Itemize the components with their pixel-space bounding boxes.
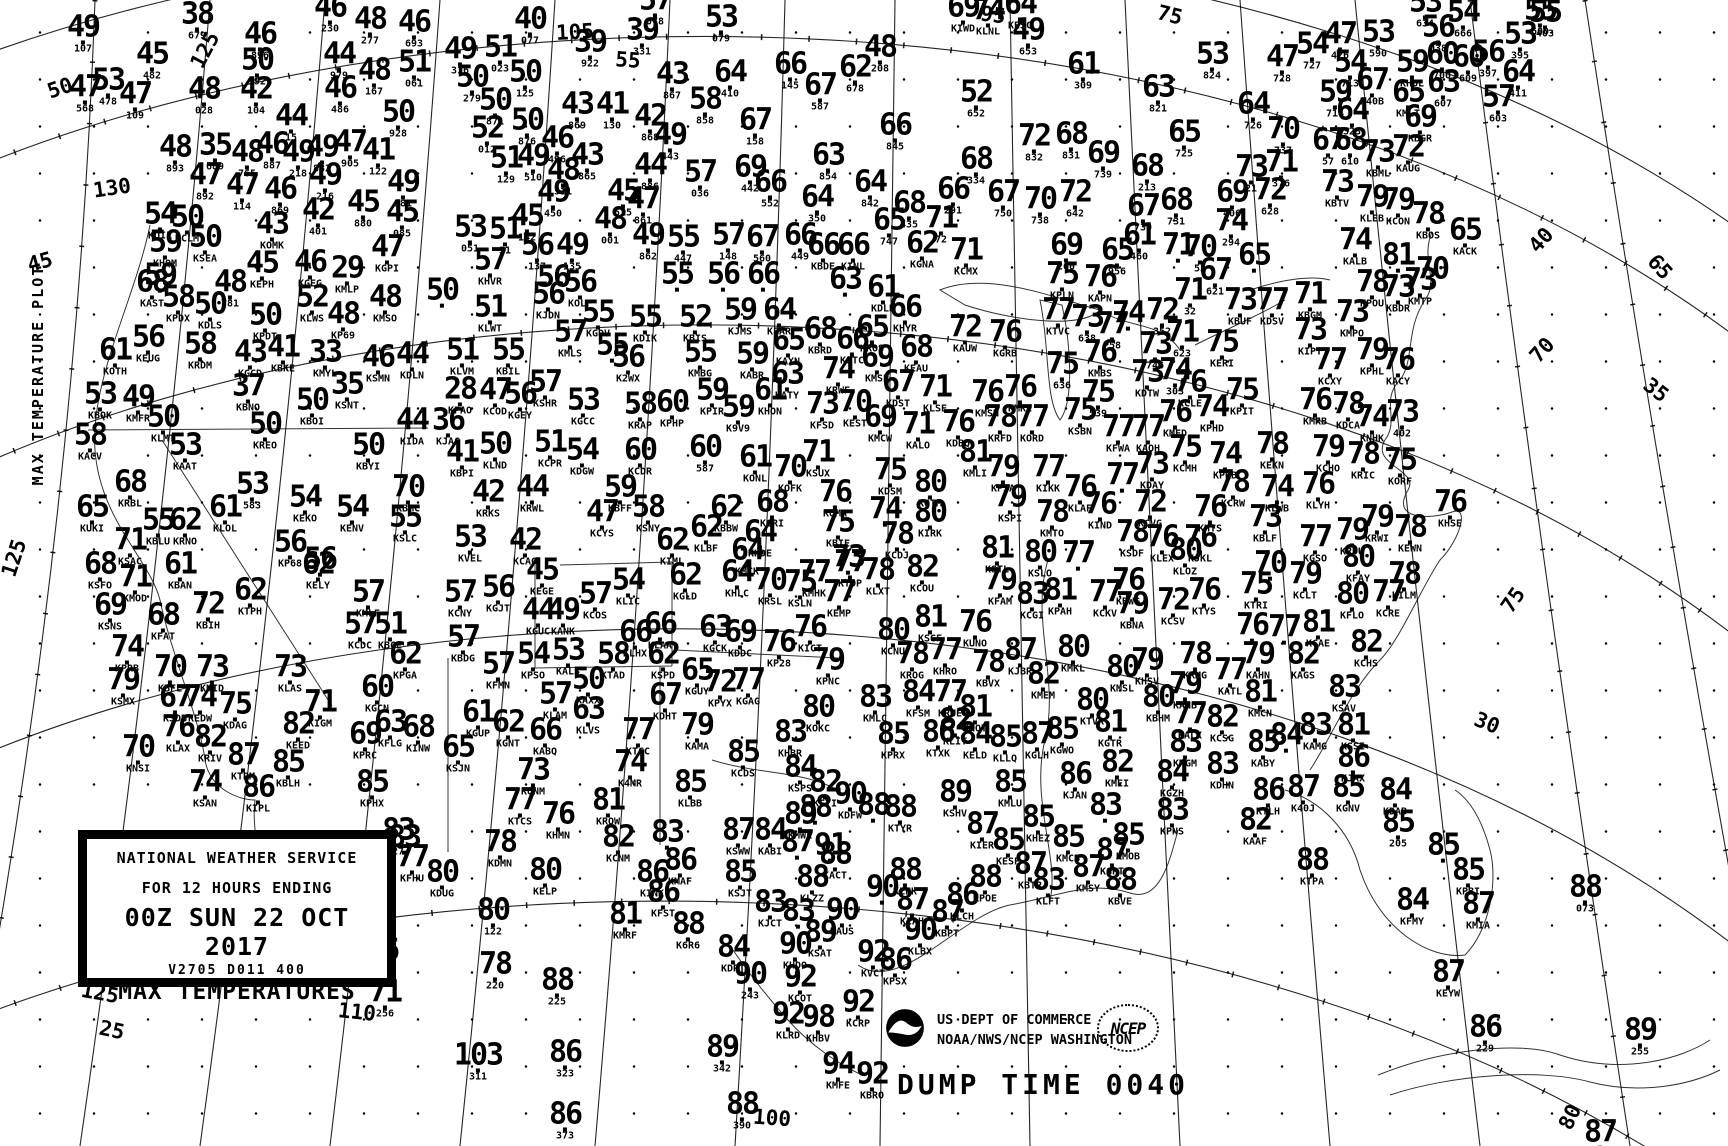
station-plot: 50 [426,278,458,308]
station-plot: 61KBAN [164,551,196,591]
station-plot: 86229 [1469,1014,1501,1053]
station-plot: 70KNSI [122,734,154,774]
station-plot: 42KRKS [472,479,504,518]
station-plot: 80KOKC [802,694,834,734]
station-plot: 76KHMN [542,801,574,841]
station-plot: 66 [747,262,779,292]
station-plot: 88K6R6 [672,911,704,951]
station-plot: 53079 [705,4,737,44]
station-plot: 55KBIL [492,337,524,377]
station-plot: 82KCHS [1350,629,1382,669]
station-plot: 57KCDC [344,611,376,651]
station-plot: 85KLBB [674,769,706,809]
station-plot: 90243 [734,961,766,1001]
station-plot: 85KPRX [877,721,909,761]
station-plot: 65KUKI [76,494,108,533]
station-plot: 51KCPR [534,429,566,469]
station-plot: 53634 [1409,0,1441,29]
station-plot: 85KCDS [727,739,759,779]
station-plot: 56KGJT [482,574,514,614]
station-plot: 77KGAG [732,667,764,707]
station-plot: 77KIKK [1032,454,1064,494]
station-plot: 49107 [67,14,99,54]
station-plot: 57KFMN [482,651,514,691]
station-plot: 50KLND [479,431,511,471]
station-plot: 57KCOS [579,581,611,621]
station-plot: 48893 [159,134,191,174]
station-plot: 76KP28 [763,629,795,669]
station-plot: 74KSAN [189,769,221,809]
station-plot: 62KPGA [389,641,421,681]
station-plot: 66KABQ [529,717,561,757]
station-plot: 61KLOL [209,494,241,533]
station-plot: 82KCSG [1206,704,1238,744]
station-plot: 48KMSO [369,284,401,324]
station-plot: 80KELP [529,857,561,897]
station-plot: 92KCRP [842,989,874,1028]
station-plot: 72KAUW [949,314,981,354]
station-plot: 86KIPL [242,774,274,814]
station-plot: 38679 [181,1,213,41]
legend-agency-title: NATIONAL WEATHER SERVICE [87,849,387,867]
station-plot: 72KCSV [1157,587,1189,627]
station-plot: 82KRIV [194,724,226,764]
station-plot: 87KEYW [1432,959,1464,999]
station-plot: 78KSDF [1116,519,1148,559]
station-plot: 63 [829,267,861,297]
station-plot: 65 [1238,243,1270,273]
station-plot: 75636 [1046,351,1078,391]
station-plot: 50KREO [249,411,281,451]
station-plot: 43869 [561,91,593,130]
station-plot: 79KCLT [1289,561,1321,601]
station-plot: 78KEWN [1394,514,1426,554]
station-plot: 77 [1062,541,1094,571]
station-plot: 49KANK [547,597,579,637]
station-plot: 62KGLD [669,562,701,602]
station-plot: 66552 [754,169,786,209]
station-plot: 83KDHN [1206,751,1238,791]
station-plot: 85KABY [1247,729,1279,769]
station-plot: 79KAMA [681,712,713,752]
station-plot: 71KSUX [802,439,834,479]
station-plot: 88390 [726,1091,758,1131]
station-plot: 84KGZH [1156,759,1188,799]
station-plot: 80122 [477,897,509,937]
station-plot: 86323 [549,1039,581,1079]
station-plot: 78KMTO [1036,499,1068,538]
station-plot: 67587 [804,72,836,112]
station-plot: 73402 [1386,399,1418,439]
station-plot: 42104 [240,76,272,116]
station-plot: 85KPHX [356,769,388,809]
station-plot: 65KACK [1449,217,1481,257]
station-plot: 66145 [774,51,806,91]
station-plot: 81KPAH [1044,577,1076,617]
station-plot: 45KEPH [246,250,278,290]
station-plot: 78KBOS [1412,201,1444,241]
station-plot: 79KFAM [984,567,1016,607]
station-plot: 70738 [1024,186,1056,226]
station-plot: 46693 [398,9,430,49]
station-plot: 48781 [214,269,246,309]
station-plot: 83KPNS [1156,797,1188,837]
station-plot: 48028 [188,76,220,116]
station-plot: 87 [781,830,813,860]
station-plot: 83KAMG [1299,712,1331,752]
station-plot: 7132 [1174,277,1206,317]
station-plot: 51061 [398,49,430,89]
station-plot: 92KLRD [772,1001,804,1040]
station-plot: 48001 [594,206,626,246]
station-plot: 75KSBN [1064,397,1096,437]
station-plot: 69KDDC [724,619,756,659]
station-plot: 50KBOI [296,387,328,427]
station-plot: 48167 [358,57,390,97]
station-plot: 35KSNT [331,371,363,411]
station-plot: 58KACV [74,422,106,462]
station-plot: 47728 [1266,44,1298,84]
station-plot: 90 [866,875,898,905]
station-plot: 45482 [136,41,168,81]
station-plot: 73KLAS [274,654,306,694]
station-plot: 62KELY [302,551,334,591]
station-plot: 78KLXT [862,557,894,597]
station-plot: 79KSMX [107,667,139,707]
station-plot: 58KPDX [162,284,194,324]
station-plot: 73KMTP [1404,267,1436,307]
station-plot: 66KHYR [889,294,921,334]
station-plot: 88073 [1569,874,1601,914]
station-plot: 82KMEI [1101,749,1133,789]
station-plot: 62KGNT [492,709,524,749]
station-plot: 63KLVS [572,696,604,736]
station-plot: 77KCRE [1372,579,1404,619]
station-plot: 76KUNO [959,609,991,649]
station-plot: 87KMIA [1462,891,1494,931]
station-plot: 85KLLQ [989,724,1021,764]
station-plot: 47KCYS [586,499,618,538]
station-plot: 45KEGE [526,557,558,597]
station-plot: 76KTYS [1188,577,1220,617]
station-plot: 50KBYI [352,432,384,472]
station-plot: 68KFAT [147,602,179,642]
station-plot: 69KMCW [864,404,896,444]
station-plot: 44KRWL [516,474,548,513]
station-plot: 89342 [706,1034,738,1074]
station-plot: 85KSJT [724,859,756,899]
station-plot: 86KTXK [922,719,954,759]
station-plot: 78KEKN [1256,431,1288,471]
station-plot: 80KLOZ [1169,537,1201,577]
station-plot: 62KSPD [647,641,679,681]
station-plot: 53KBOK [84,381,116,421]
station-plot: 73KBML [1362,139,1394,179]
station-plot: 85KBLH [272,749,304,789]
station-plot: 64842 [854,169,886,209]
station-plot: 57078 [639,0,671,27]
station-plot: 84KELD [959,721,991,761]
station-plot: 54KENV [336,494,368,533]
station-plot: 79KCON [1382,187,1414,227]
station-plot: 57KBDG [447,624,479,664]
station-plot: 57KSHR [529,369,561,409]
station-plot: 47KGPI [371,234,403,274]
station-plot: 87 [1584,1120,1616,1146]
station-plot: 76KMRB [1299,387,1331,427]
station-plot: 46KSMN [362,344,394,384]
station-plot: 65KSJN [442,734,474,774]
station-plot: 61KONL [739,444,771,484]
station-plot: 54KEKO [289,484,321,523]
station-plot: 82KAAF [1239,807,1271,847]
legend-product-title: MAX TEMPERATURES [87,979,387,1005]
station-plot: 83KLFT [1032,867,1064,907]
station-plot: 75KPIT [1226,377,1258,417]
dump-time-label: DUMP TIME 0040 [897,1068,1189,1101]
station-plot: 60KPHP [656,389,688,429]
station-plot: 76KHSE [1434,489,1466,528]
station-plot: 82KMEM [1027,661,1059,701]
station-plot: 79KBNA [1116,591,1148,631]
station-plot: 75KTRI [1240,571,1272,611]
station-plot: 74KPHD [1196,394,1228,434]
station-plot: 55600 [1524,0,1556,37]
station-plot: 70KRSL [754,567,786,607]
station-plot: 53KGCC [567,387,599,427]
station-plot: 44KDLN [396,341,428,381]
station-plot: 47109 [119,81,151,121]
station-plot: 77KHRO [929,637,961,677]
station-plot: 71KALO [902,411,934,451]
station-plot: 39922 [574,29,606,69]
station-plot: 59K9V9 [722,394,754,434]
station-plot: 87KBPT [931,899,963,939]
station-plot: 63854 [812,142,844,182]
station-plot: 62KTPH [234,577,266,617]
station-plot: 61KHON [754,377,786,417]
station-plot: 92KBRO [856,1061,888,1101]
station-plot: 87KSWW [722,817,754,857]
station-plot: 47892 [189,162,221,202]
legend-period-label: FOR 12 HOURS ENDING [87,879,387,897]
station-plot: 67750 [987,179,1019,219]
station-plot: 41130 [596,91,628,130]
station-plot: 53KAAT [169,432,201,472]
station-plot: 69739 [1087,140,1119,180]
station-plot: 40077 [514,6,546,46]
station-plot: 49862 [632,222,664,262]
station-plot: 74KALB [1339,227,1371,267]
station-plot: 61KOTH [99,337,131,377]
station-plot: 81KMCN [1244,679,1276,719]
station-plot: 47114 [226,172,258,212]
station-plot: 81KMRF [609,901,641,941]
station-plot: 48208 [864,34,896,74]
station-plot: 52KLWS [296,284,328,324]
station-plot: 76KLYH [1302,471,1334,511]
station-plot: 62KGNA [906,230,938,270]
station-plot: 61309 [1067,51,1099,91]
station-plot: 62KLBF [690,514,722,554]
station-plot: 77KCXY [1314,347,1346,387]
station-plot: 76KLAX [162,714,194,754]
station-plot: 77KFWA [1102,414,1134,454]
station-plot: 55KDIK [629,304,661,344]
station-plot: 80KFLO [1336,581,1368,621]
station-plot: 43865 [571,142,603,182]
station-plot: 89255 [1624,1017,1656,1056]
station-plot: 68831 [1055,121,1087,160]
station-plot: 68KBRD [804,316,836,356]
station-plot: 79KPNC [812,647,844,687]
station-plot: 62KRNO [169,507,201,546]
station-plot: 41KBPI [446,439,478,479]
station-plot: 77KFHU [396,844,428,884]
station-plot: 48277 [354,6,386,46]
station-plot: 72832 [1018,123,1050,162]
station-plot: 76KACY [1382,347,1414,387]
station-plot: 69KSNS [94,592,126,632]
station-plot: 29KMLP [331,255,363,295]
station-plot: 77KTCS [504,787,536,827]
station-plot: 58KRDM [184,331,216,371]
station-plot: 64410 [714,59,746,99]
station-plot: 73KBTV [1321,169,1353,209]
station-plot: 78220 [479,951,511,991]
station-plot: 56397 [1472,39,1504,79]
station-plot: 78KBVX [972,649,1004,689]
weather-map-canvas: 4910745482475685347847109386794689650192… [0,0,1728,1146]
station-plot: 46230 [314,0,346,34]
station-plot: 42401 [302,197,334,237]
station-plot: 84KFMY [1396,887,1428,927]
station-plot: 85KHEZ [1022,804,1054,844]
station-plot: 76KMBS [1084,339,1116,379]
station-plot: 77KDSV [1256,287,1288,327]
station-plot: 82KCOU [906,554,938,594]
station-plot: 54KPSO [517,641,549,681]
station-plot: 67158 [739,107,771,146]
station-plot: 68731 [1160,187,1192,227]
legend-version-codes: V2705 D011 400 [87,963,387,978]
station-plot: 45880 [347,189,379,229]
station-plot: 98KHBV [802,1004,834,1043]
station-plot: 72628 [1254,177,1286,217]
station-plot: 88 [857,793,889,823]
station-plot: 53824 [1196,41,1228,81]
station-plot: 81KGTR [1094,709,1126,749]
station-plot: 68KINW [402,714,434,754]
station-plot: 54666 [1447,0,1479,39]
station-plot: 64KHLC [721,559,753,599]
station-plot: 65747 [873,207,905,247]
station-plot: 68213 [1131,153,1163,193]
station-plot: 46486 [324,75,356,115]
station-plot: 65725 [1168,119,1200,158]
station-plot: 86373 [549,1101,581,1141]
station-plot: 64726 [1237,91,1269,130]
station-plot: 94KMFE [822,1051,854,1091]
legend-box: NATIONAL WEATHER SERVICE FOR 12 HOURS EN… [78,830,396,987]
legend-valid-time: 00Z SUN 22 OCT 2017 [87,903,387,961]
station-plot: 43867 [656,61,688,101]
station-plot: 76KGRB [989,319,1021,359]
station-plot: 85KGWO [1046,716,1078,756]
station-plot: 53590 [1362,19,1394,59]
station-plot: 80KDUG [426,859,458,899]
station-plot: 85KGNV [1332,774,1364,814]
noaa-logo-icon [885,1008,925,1048]
station-plot: 75KORF [1384,447,1416,487]
station-plot: 59KJMS [724,297,756,337]
station-plot: 57KCNY [444,579,476,619]
station-plot: 79KSPI [994,484,1026,523]
station-plot: 68KSFO [84,551,116,591]
station-plot: 54KDGW [566,437,598,477]
station-plot: 49981 [387,169,419,209]
station-plot: 53KVEL [454,524,486,564]
station-plot: 88225 [541,967,573,1007]
station-plot: 66845 [879,112,911,151]
station-plot: 72642 [1059,179,1091,219]
station-plot: 63821 [1142,74,1174,114]
station-plot: 77KTVC [1042,297,1074,337]
station-plot: 50KSEA [189,224,221,264]
station-plot: 103311 [454,1042,502,1082]
station-plot: 55KSLC [389,504,421,543]
station-plot: 75KCMH [1169,434,1201,474]
station-plot: 80KIRK [914,499,946,538]
station-plot: 57KHVR [474,247,506,287]
station-plot: 73KFSD [806,391,838,431]
station-plot: 57603 [1482,84,1514,124]
station-plot: 72KAUG [1392,134,1424,174]
station-plot: 57036 [684,159,716,199]
station-plot: 60587 [689,434,721,474]
station-plot: 51KLWT [474,294,506,334]
station-plot: 56KEUG [132,324,164,364]
station-plot: 41KBKE [267,334,299,374]
station-plot: 87K40J [1287,774,1319,814]
station-plot: 76KIND [1084,491,1116,530]
station-plot: 78KDMN [484,829,516,869]
station-plot: 84KFSM [902,679,934,719]
station-plot: 85205 [1382,809,1414,849]
station-plot: 74KLNL [972,0,1004,37]
station-plot: 86KPSX [879,947,911,987]
station-plot: 86KJAN [1059,761,1091,801]
station-plot: 75KERI [1206,329,1238,369]
station-plot: 72KBIH [192,591,224,631]
station-plot: 55 [661,262,693,292]
station-plot: 54KLIC [612,567,644,607]
station-plot: 50125 [509,59,541,99]
station-plot: 71KCMX [950,237,982,277]
station-plot: 56 [707,262,739,292]
station-plot: 73KBLF [1249,504,1281,543]
station-plot: 73KBUF [1224,287,1256,327]
station-plot: 58KRAP [624,391,656,431]
station-plot: 82KAGS [1287,641,1319,681]
ncep-logo-icon: NCEP [1097,1004,1159,1052]
station-plot: 64KESC [1004,0,1036,31]
station-plot: 82KCNM [602,824,634,864]
side-axis-title: MAX TEMPERATURE PLOT [29,265,47,486]
station-plot: 87KGPT [1096,837,1128,877]
station-plot: 69KPRC [349,721,381,761]
station-plot: 88KTPA [1296,847,1328,887]
